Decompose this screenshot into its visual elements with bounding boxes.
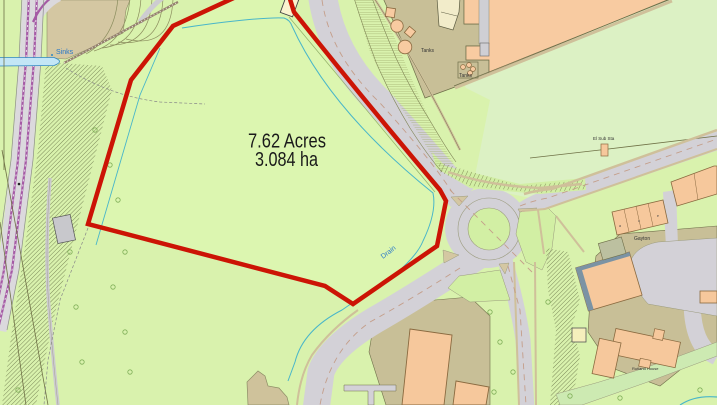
svg-text:e: e [657,214,659,218]
svg-text:Gayton: Gayton [634,236,650,242]
svg-text:El Sub Sta: El Sub Sta [593,136,615,141]
svg-text:3.084 ha: 3.084 ha [255,149,319,171]
svg-text:Tanks: Tanks [421,48,435,54]
svg-text:Sinks: Sinks [56,49,74,56]
svg-text:Tanks: Tanks [459,73,473,79]
svg-text:Rutland House: Rutland House [632,366,659,371]
svg-text:a: a [619,224,621,228]
svg-text:c: c [638,219,640,223]
